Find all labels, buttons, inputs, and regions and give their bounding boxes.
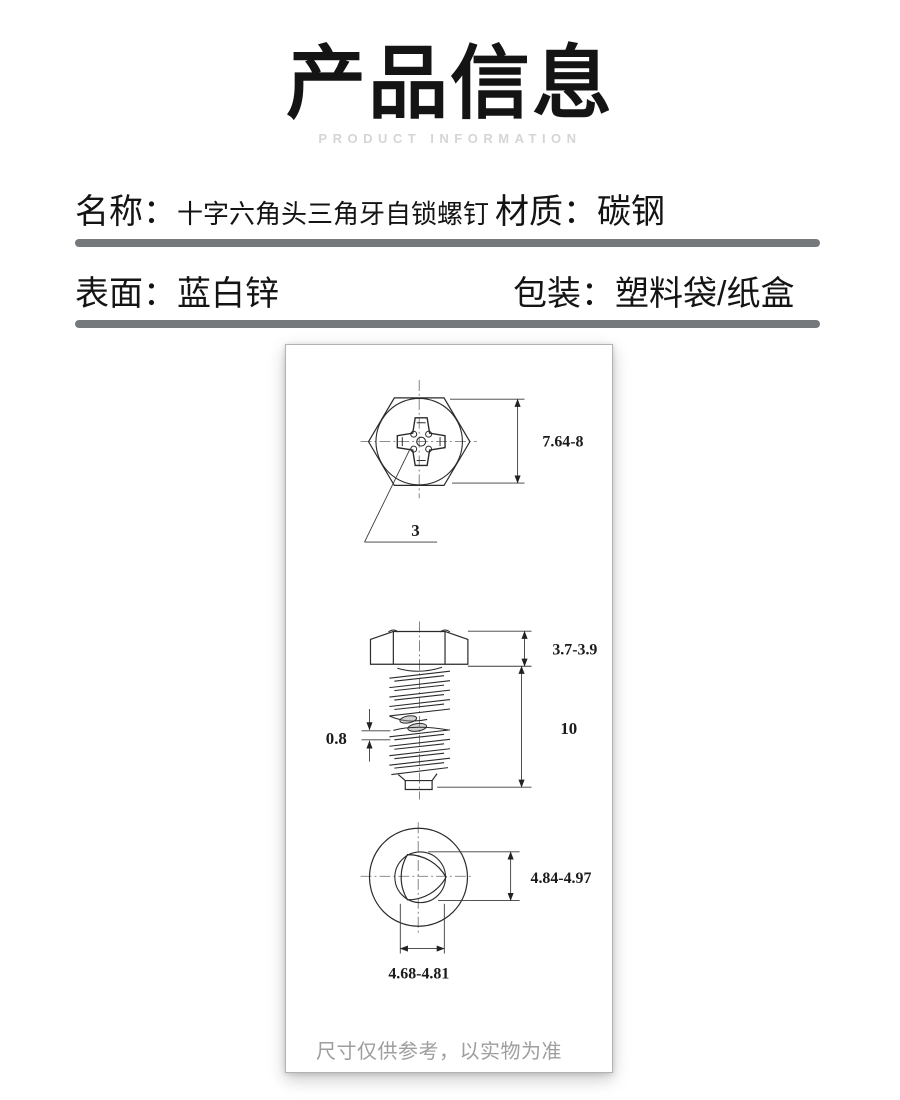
- dim-shank-length: 10: [560, 719, 577, 738]
- dim-head-thickness: 3.7-3.9: [552, 641, 597, 658]
- spec-packaging-value: 塑料袋/纸盒: [615, 266, 794, 315]
- spec-row-name-material: 名称： 十字六角头三角牙自锁螺钉 材质： 碳钢: [0, 184, 900, 228]
- spec-name-label: 名称：: [75, 184, 177, 233]
- technical-drawing-svg: 7.64-8 3: [286, 345, 612, 1072]
- product-subtitle: PRODUCT INFORMATION: [0, 131, 900, 146]
- spec-material-value: 碳钢: [597, 184, 665, 233]
- thread-break-hatching: [399, 715, 427, 733]
- spec-packaging-group: 包装： 塑料袋/纸盒: [513, 266, 794, 315]
- dim-major-diameter: 4.84-4.97: [531, 870, 592, 887]
- inner-circle: [395, 852, 446, 903]
- spec-row-surface-packaging: 表面： 蓝白锌 包装： 塑料袋/纸盒: [0, 266, 900, 310]
- dim-thread-pitch: 0.8: [326, 729, 347, 748]
- drawing-panel: 7.64-8 3: [285, 344, 613, 1073]
- dim-head-across-lines: [450, 399, 525, 483]
- drawing-note: 尺寸仅供参考，以实物为准: [316, 1035, 562, 1064]
- spec-material-label: 材质：: [495, 184, 597, 233]
- bottom-view-centerlines: [361, 822, 473, 933]
- dim-head-across: 7.64-8: [542, 434, 583, 451]
- recess-leader-line: [365, 449, 438, 542]
- bottom-view-drawing: [361, 822, 520, 953]
- spec-material-group: 材质： 碳钢: [495, 184, 665, 233]
- screw-tip: [398, 774, 437, 790]
- side-view-drawing: [362, 622, 532, 800]
- dim-recess-number: 3: [411, 521, 419, 540]
- spec-packaging-label: 包装：: [513, 266, 615, 315]
- spec-surface-label: 表面：: [75, 266, 177, 315]
- divider-bar: [75, 239, 820, 247]
- upper-threads: [389, 671, 450, 721]
- lower-threads: [389, 727, 450, 774]
- product-title: 产品信息: [0, 42, 900, 126]
- top-view-drawing: [361, 380, 525, 542]
- dim-minor-diameter: 4.68-4.81: [388, 965, 449, 982]
- spec-surface-value: 蓝白锌: [177, 266, 279, 315]
- spec-surface-group: 表面： 蓝白锌: [75, 266, 279, 315]
- spec-name-group: 名称： 十字六角头三角牙自锁螺钉: [75, 184, 489, 233]
- divider-bar: [75, 320, 820, 328]
- spec-name-value: 十字六角头三角牙自锁螺钉: [177, 194, 489, 231]
